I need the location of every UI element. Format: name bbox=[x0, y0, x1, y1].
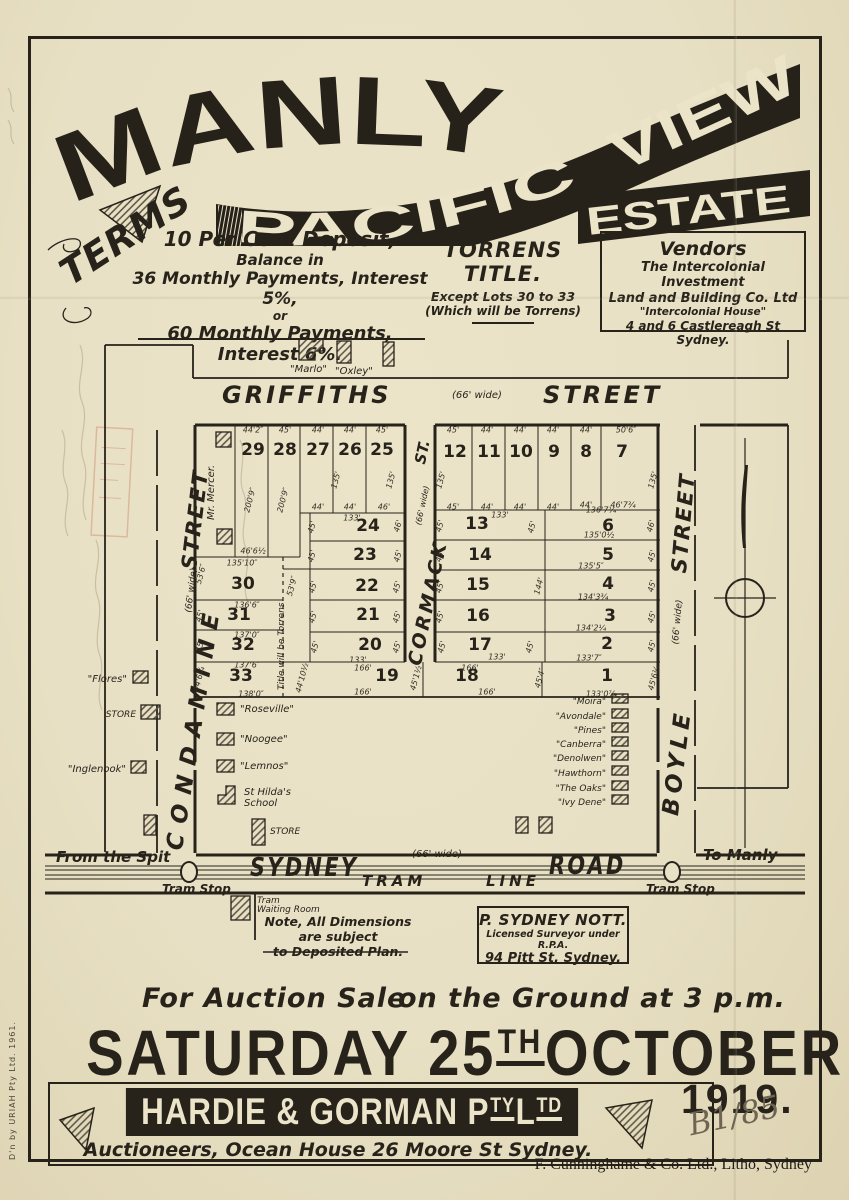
tram-stop-label-east: Tram Stop bbox=[646, 882, 715, 896]
house-label-st-hildas-2: School bbox=[244, 798, 277, 809]
dimension-label: 44' bbox=[312, 426, 324, 435]
lot-number-28: 28 bbox=[273, 440, 297, 460]
agent-ltd-l: L bbox=[516, 1091, 536, 1132]
dimension-label: 44' bbox=[547, 503, 559, 512]
lot-number-22: 22 bbox=[355, 576, 379, 596]
dimension-label: 137'6″ bbox=[234, 661, 260, 670]
dimension-label: 45' bbox=[646, 610, 658, 624]
dimension-label: 135'10″ bbox=[227, 559, 258, 568]
agent-pty-sup: TY bbox=[490, 1094, 515, 1121]
dimension-label: 45' bbox=[309, 640, 321, 654]
dimension-label: 45' bbox=[434, 610, 446, 624]
dimension-label: 44' bbox=[580, 426, 592, 435]
lot-number-1: 1 bbox=[601, 666, 613, 686]
house-label-pines: "Pines" bbox=[574, 726, 606, 736]
dimension-label: 133' bbox=[343, 514, 360, 523]
street-width-cormack: (66' wide) bbox=[414, 485, 431, 526]
auction-date-ordinal: TH bbox=[496, 1023, 545, 1066]
dimension-label: 45' bbox=[391, 580, 403, 594]
dimension-label: 45' bbox=[279, 426, 291, 435]
dimension-label: 135'5″ bbox=[578, 562, 604, 571]
owner-label-mercer: Mr. Mercer. bbox=[206, 465, 217, 520]
house-label-hawthorn: "Hawthorn" bbox=[554, 769, 606, 779]
lot-number-25: 25 bbox=[370, 440, 394, 460]
agent-name: HARDIE & GORMAN bbox=[141, 1091, 458, 1132]
note-line-1: Note, All Dimensions are subject bbox=[258, 914, 418, 944]
lot-number-4: 4 bbox=[602, 574, 614, 594]
store-label-west: STORE bbox=[106, 710, 136, 720]
dimension-label: 44' bbox=[514, 503, 526, 512]
dimension-label: 136'6″ bbox=[234, 601, 260, 610]
dimension-label: 46'6½ bbox=[240, 547, 265, 556]
dimension-label: 50'6″ bbox=[616, 426, 636, 435]
dimension-label: 45' bbox=[646, 549, 658, 563]
street-label-boyle-2: STREET bbox=[667, 472, 700, 574]
dimension-label: 133'7″ bbox=[576, 654, 602, 663]
dimension-label: 45' bbox=[306, 520, 318, 534]
dimension-label: 45'1½ bbox=[408, 665, 423, 692]
surveyor-line-2: Licensed Surveyor under R.P.A. bbox=[479, 929, 627, 951]
dimension-label: 45' bbox=[306, 549, 318, 563]
lot-number-8: 8 bbox=[580, 442, 592, 462]
dimension-label: 46' bbox=[378, 503, 390, 512]
lot-number-30: 30 bbox=[231, 574, 255, 594]
lot-number-16: 16 bbox=[466, 606, 490, 626]
street-label-boyle: BOYLE bbox=[658, 707, 697, 817]
road-label-road: ROAD bbox=[549, 851, 626, 881]
lot-number-27: 27 bbox=[306, 440, 330, 460]
house-label-avondale: "Avondale" bbox=[556, 712, 606, 722]
dimension-label: 44' bbox=[547, 426, 559, 435]
dimension-label: 44' bbox=[344, 503, 356, 512]
surveyor-line-3: 94 Pitt St, Sydney. bbox=[479, 951, 627, 966]
house-label-roseville: "Roseville" bbox=[240, 704, 294, 715]
dimension-label: 134'2¼ bbox=[576, 624, 606, 633]
lot-number-7: 7 bbox=[616, 442, 628, 462]
dimension-label: 144' bbox=[532, 576, 545, 595]
lot-number-23: 23 bbox=[353, 545, 377, 565]
house-label-flores: "Flores" bbox=[88, 674, 127, 685]
house-label-ivy-dene: "Ivy Dene" bbox=[558, 798, 606, 808]
dimension-label: 45' bbox=[391, 610, 403, 624]
lot-number-9: 9 bbox=[548, 442, 560, 462]
dimension-label: 44' bbox=[514, 426, 526, 435]
dimension-label: 46' bbox=[645, 519, 657, 533]
agent-banner: HARDIE & GORMAN PTYLTD bbox=[126, 1088, 578, 1136]
dimension-label: 45'4″ bbox=[533, 667, 547, 689]
dimension-label: 135' bbox=[329, 470, 342, 489]
street-label-griffiths-2: STREET bbox=[543, 381, 662, 409]
lot-number-2: 2 bbox=[601, 634, 613, 654]
street-label-griffiths: GRIFFITHS bbox=[222, 381, 392, 409]
dimension-label: 166' bbox=[461, 664, 478, 673]
store-label-south: STORE bbox=[270, 827, 300, 837]
dimension-label: 136'7¼ bbox=[586, 506, 616, 515]
auction-sale-text: For Auction Sale bbox=[142, 983, 406, 1014]
lot-number-14: 14 bbox=[468, 545, 492, 565]
printer-credit: F. Cunninghame & Co. Ltd., Litho, Sydney bbox=[380, 1156, 812, 1174]
dimension-label: 133' bbox=[491, 511, 508, 520]
house-label-marlo: "Marlo" bbox=[290, 364, 327, 375]
note-line-2: to Deposited Plan. bbox=[258, 944, 418, 959]
lot-number-12: 12 bbox=[443, 442, 467, 462]
side-print-credit: D'n by URIAH Pty Ltd. 1961. bbox=[8, 1021, 17, 1160]
dimension-label: 45' bbox=[646, 579, 658, 593]
tram-line-label-1: TRAM bbox=[362, 872, 426, 890]
dimension-label: 45' bbox=[392, 549, 404, 563]
house-label-inglenook: "Inglenook" bbox=[68, 764, 126, 775]
road-label-sydney: SYDNEY bbox=[250, 853, 358, 883]
auction-date: SATURDAY 25THOCTOBER bbox=[86, 1016, 763, 1090]
house-label-oxley: "Oxley" bbox=[335, 366, 373, 377]
lot-number-29: 29 bbox=[241, 440, 265, 460]
house-label-lemnos: "Lemnos" bbox=[240, 761, 288, 772]
dimension-label: 200'9″ bbox=[242, 486, 257, 513]
street-label-cormack-2: ST. bbox=[411, 438, 434, 465]
dimension-label: 45' bbox=[307, 580, 319, 594]
house-label-canberra: "Canberra" bbox=[556, 740, 606, 750]
dimension-label: 137'0″ bbox=[234, 631, 260, 640]
house-label-denolwen: "Denolwen" bbox=[553, 754, 606, 764]
dimension-label: 45' bbox=[646, 639, 658, 653]
dimension-label: 200'9″ bbox=[275, 486, 290, 513]
house-label-the-oaks: "The Oaks" bbox=[556, 784, 606, 794]
dimension-label: 45' bbox=[436, 640, 448, 654]
house-label-moira: "Moira" bbox=[573, 697, 606, 707]
lot-number-21: 21 bbox=[356, 605, 380, 625]
dimension-label: 45' bbox=[376, 426, 388, 435]
dimension-label: 135' bbox=[646, 470, 659, 489]
dimension-label: 135' bbox=[434, 470, 447, 489]
torrens-boundary-label: Title will be Torrens bbox=[277, 603, 287, 690]
dimension-label: 133' bbox=[488, 653, 505, 662]
street-width-griffiths: (66' wide) bbox=[452, 390, 502, 401]
lot-number-26: 26 bbox=[338, 440, 362, 460]
dimension-label: 45' bbox=[526, 520, 538, 534]
agent-pty-p: P bbox=[468, 1091, 490, 1132]
dimension-label: 135' bbox=[384, 470, 397, 489]
dimension-label: 45' bbox=[524, 640, 536, 654]
lot-number-13: 13 bbox=[465, 514, 489, 534]
road-width-sydney: (66' wide) bbox=[412, 849, 462, 860]
dimension-label: 45' bbox=[447, 426, 459, 435]
dimension-label: 166' bbox=[478, 688, 495, 697]
lot-number-15: 15 bbox=[466, 575, 490, 595]
lot-number-20: 20 bbox=[358, 635, 382, 655]
direction-label-spit: From the Spit bbox=[56, 848, 170, 866]
dimension-label: 138'0″ bbox=[238, 690, 264, 699]
dimension-label: 44'10½ bbox=[294, 662, 311, 694]
dimensions-note: Note, All Dimensions are subject to Depo… bbox=[258, 914, 418, 959]
auction-date-main: SATURDAY 25 bbox=[86, 1017, 496, 1089]
dimension-label: 45' bbox=[447, 503, 459, 512]
tram-line-label-2: LINE bbox=[486, 872, 540, 890]
surveyor-name: P. SYDNEY NOTT. bbox=[479, 911, 627, 929]
surveyor-box: P. SYDNEY NOTT. Licensed Surveyor under … bbox=[477, 906, 629, 964]
dimension-label: 134'3¾ bbox=[578, 593, 608, 602]
dimension-label: 44'2″ bbox=[243, 426, 263, 435]
lot-number-10: 10 bbox=[509, 442, 533, 462]
dimension-label: 45'6¼ bbox=[646, 665, 661, 692]
dimension-label: 135'0½ bbox=[584, 531, 614, 540]
dimension-label: 45' bbox=[434, 519, 446, 533]
dimension-label: 133'0⅞ bbox=[586, 690, 616, 699]
agent-ltd-sup: TD bbox=[536, 1094, 562, 1121]
tram-stop-label-west: Tram Stop bbox=[162, 882, 231, 896]
direction-label-manly: To Manly bbox=[703, 846, 777, 864]
auction-ground-text: on the Ground at 3 p.m. bbox=[398, 983, 786, 1014]
dimension-label: 45' bbox=[391, 640, 403, 654]
street-label-condamine: CONDAMINE bbox=[162, 602, 227, 852]
estate-poster: MANLY PACIFIC VIEW ESTATE TERMS 10 Per C… bbox=[0, 0, 849, 1200]
house-label-noogee: "Noogee" bbox=[240, 734, 288, 745]
dimension-label: 46' bbox=[392, 519, 404, 533]
house-label-st-hildas: St Hilda's bbox=[244, 787, 291, 798]
dimension-label: 45' bbox=[307, 610, 319, 624]
lot-number-19: 19 bbox=[375, 666, 399, 686]
dimension-label: 53'9″ bbox=[285, 575, 299, 597]
dimension-label: 44' bbox=[481, 426, 493, 435]
dimension-label: 44' bbox=[344, 426, 356, 435]
street-width-boyle: (66' wide) bbox=[671, 599, 685, 645]
dimension-label: 166' bbox=[354, 664, 371, 673]
dimension-label: 45' bbox=[434, 580, 446, 594]
lot-number-11: 11 bbox=[477, 442, 501, 462]
dimension-label: 166' bbox=[354, 688, 371, 697]
dimension-label: 44' bbox=[312, 503, 324, 512]
